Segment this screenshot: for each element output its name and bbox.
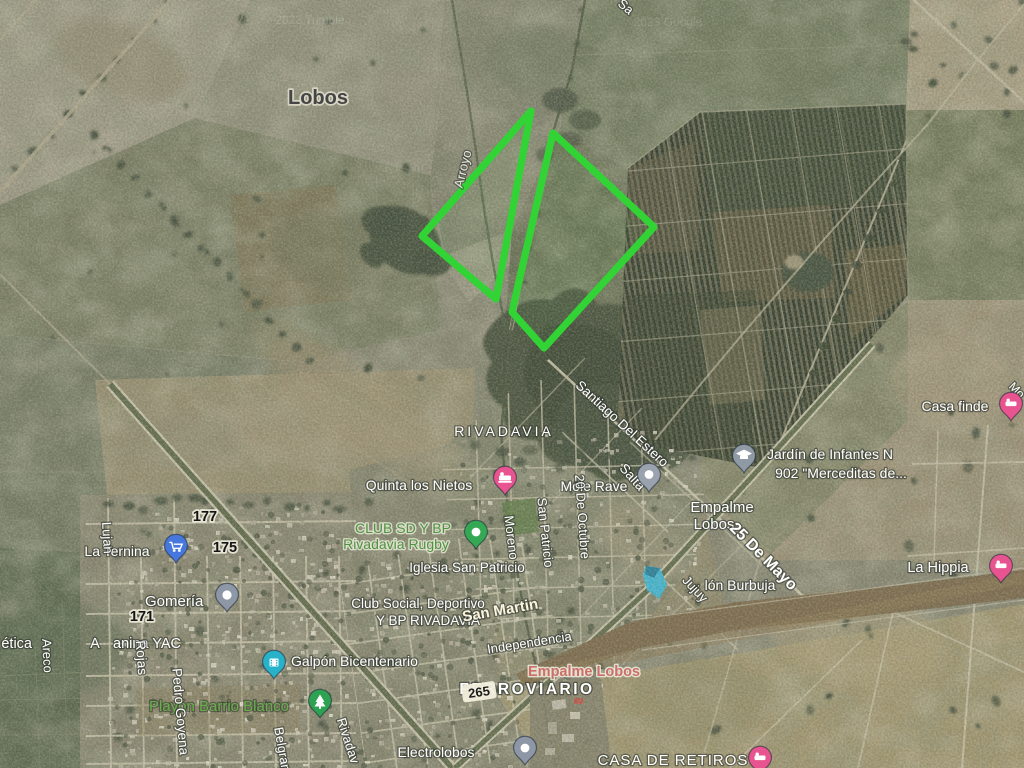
svg-text:177: 177	[193, 509, 217, 525]
svg-text:175: 175	[213, 540, 237, 556]
svg-text:Empalme Lobos: Empalme Lobos	[528, 664, 640, 680]
svg-text:CLUB SD Y BP: CLUB SD Y BP	[355, 520, 451, 536]
svg-text:lón Burbuja: lón Burbuja	[705, 577, 776, 593]
svg-text:Rojas: Rojas	[133, 640, 150, 676]
svg-text:Lujan: Lujan	[99, 521, 116, 554]
svg-text:A: A	[90, 636, 100, 652]
svg-text:Lobos: Lobos	[288, 87, 348, 109]
svg-text:Empalme: Empalme	[690, 499, 753, 516]
svg-text:Playón Barrio Blanco: Playón Barrio Blanco	[149, 698, 289, 715]
svg-text:Rivadavia Rugby: Rivadavia Rugby	[343, 536, 449, 552]
svg-text:2023 Google: 2023 Google	[634, 15, 703, 29]
svg-text:2023 Trimble: 2023 Trimble	[275, 13, 345, 27]
svg-text:Casa finde: Casa finde	[922, 398, 989, 414]
svg-text:Quinta los Nietos: Quinta los Nietos	[366, 477, 473, 493]
svg-text:La Hippia: La Hippia	[907, 560, 969, 576]
svg-text:Areco: Areco	[39, 638, 56, 673]
svg-text:RIVADAVIA: RIVADAVIA	[454, 423, 554, 439]
svg-text:Galpón Bicentenario: Galpón Bicentenario	[291, 653, 418, 669]
svg-text:Jardín de Infantes N: Jardín de Infantes N	[767, 446, 893, 462]
svg-text:Mole Rave: Mole Rave	[561, 478, 628, 494]
svg-text:902 "Merceditas de...: 902 "Merceditas de...	[775, 465, 907, 481]
svg-text:Electrolobos: Electrolobos	[397, 744, 474, 760]
svg-text:ética: ética	[1, 636, 33, 652]
svg-text:Iglesia San Patricio: Iglesia San Patricio	[409, 560, 525, 575]
svg-text:265: 265	[467, 683, 491, 701]
svg-text:La Ternina: La Ternina	[84, 543, 149, 559]
svg-text:CASA DE RETIROS: CASA DE RETIROS	[598, 752, 749, 768]
svg-text:171: 171	[130, 609, 154, 625]
svg-text:Gomería: Gomería	[145, 593, 204, 610]
